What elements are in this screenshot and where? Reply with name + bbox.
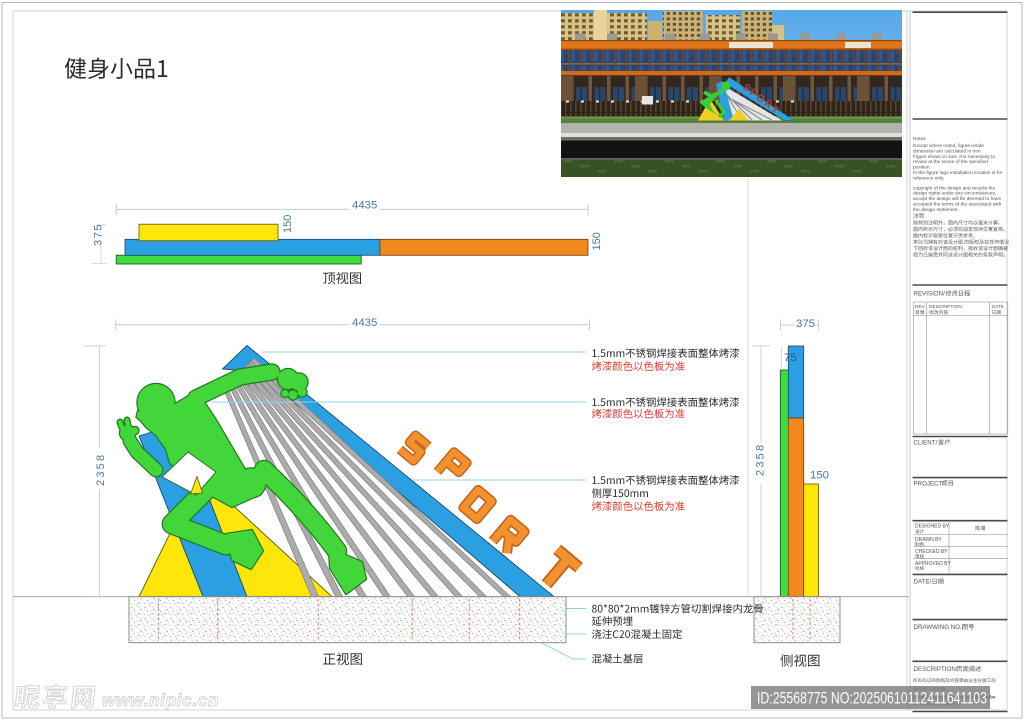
svg-text:4435: 4435 — [352, 200, 377, 212]
svg-text:In the figure logo installatio: In the figure logo installation location… — [913, 170, 1003, 176]
svg-text:REVISION/: REVISION/ — [914, 291, 946, 298]
svg-text:Figure shown in size, it is ne: Figure shown in size, it is necessary to — [913, 154, 995, 160]
svg-text:accept the design will be deem: accept the design will be deemed to have — [913, 196, 1001, 202]
svg-text:2358: 2358 — [95, 453, 107, 486]
svg-text:the design statement.: the design statement. — [913, 207, 959, 213]
svg-text:Except where noted, figure ins: Except where noted, figure inside — [913, 143, 984, 149]
svg-text:150: 150 — [591, 232, 603, 250]
svg-text:ID:25568775 NO:202506101124116: ID:25568775 NO:20250610112411641103 — [757, 689, 987, 708]
svg-text:review at the scene of the spe: review at the scene of the specified — [913, 159, 988, 165]
svg-text:DATE/: DATE/ — [914, 579, 932, 586]
svg-text:150: 150 — [810, 470, 829, 482]
svg-text:2358: 2358 — [755, 443, 767, 476]
svg-text:DRAWN BY: DRAWN BY — [915, 537, 942, 543]
svg-text:Notes: Notes — [913, 136, 926, 142]
svg-text:www.nipic.cn: www.nipic.cn — [102, 690, 219, 710]
svg-text:copyright of the design and re: copyright of the design and recycle the — [913, 185, 995, 191]
svg-text:position.: position. — [913, 165, 931, 171]
svg-text:DRAWWING NO./: DRAWWING NO./ — [914, 624, 964, 631]
svg-text:APPROVED BY: APPROVED BY — [915, 561, 952, 567]
svg-text:REV: REV — [915, 304, 926, 310]
svg-text:CLIENT/: CLIENT/ — [914, 440, 938, 447]
svg-text:PROJECT/: PROJECT/ — [914, 481, 945, 488]
svg-text:375: 375 — [93, 223, 105, 246]
svg-text:CHECKED BY: CHECKED BY — [915, 549, 948, 555]
svg-text:dimension are calculated in mm: dimension are calculated in mm. — [913, 148, 982, 154]
svg-text:75: 75 — [784, 352, 797, 364]
svg-text:DESCRIPTION: DESCRIPTION — [929, 304, 962, 310]
svg-text:accepted the terms of the asso: accepted the terms of the associated wit… — [913, 202, 1002, 208]
svg-text:150: 150 — [282, 215, 294, 233]
svg-text:375: 375 — [796, 318, 815, 330]
svg-text:design rights under any circum: design rights under any circumstances, — [913, 191, 996, 197]
svg-text:4435: 4435 — [352, 317, 377, 329]
svg-text:DESIGNED BY: DESIGNED BY — [915, 524, 950, 530]
svg-text:DATE: DATE — [992, 304, 1004, 310]
svg-text:reference only.: reference only. — [913, 175, 944, 181]
svg-text:DESCRIPTION/: DESCRIPTION/ — [914, 666, 958, 673]
